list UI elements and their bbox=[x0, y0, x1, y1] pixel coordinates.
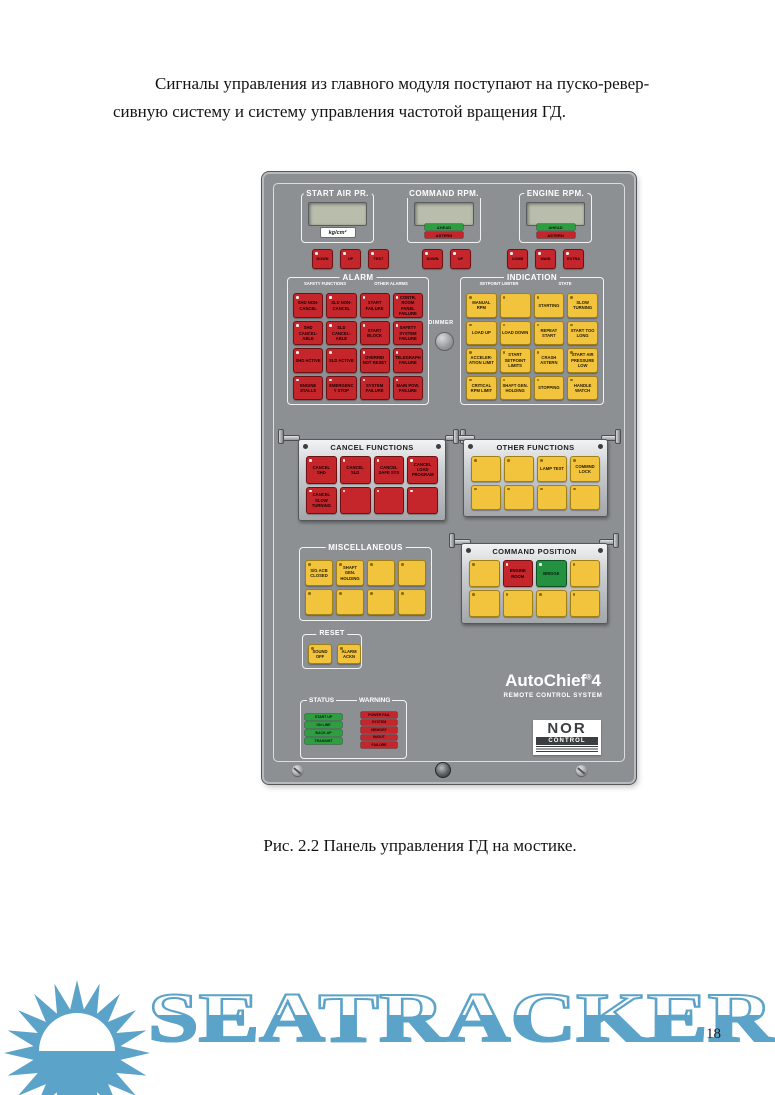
panel-button[interactable]: DOWN bbox=[312, 249, 333, 269]
command-position-button[interactable]: ENGINE ROOM bbox=[503, 560, 534, 587]
indication-button[interactable]: MANUAL RPM bbox=[466, 293, 497, 318]
button-label: S/G ACB CLOSED bbox=[306, 567, 332, 580]
button-led-dot bbox=[343, 252, 346, 255]
warning-title: WARNING bbox=[357, 697, 392, 704]
start-air-buttons: DOWNUPTEST bbox=[312, 249, 389, 269]
button-led-dot bbox=[339, 563, 342, 566]
start-air-pressure-group: START AIR PR. kg/cm² bbox=[301, 193, 374, 243]
other-functions-panel: OTHER FUNCTIONS LAMP TESTCOMMND LOCK bbox=[463, 439, 608, 517]
misc-button[interactable]: S/G ACB CLOSED bbox=[305, 560, 333, 586]
command-rpm-buttons: DOWNUP bbox=[422, 249, 471, 269]
alarm-button[interactable]: SHD CANCEL-ABLE bbox=[293, 321, 323, 345]
button-label: START BLOCK bbox=[361, 327, 389, 340]
button-led-dot bbox=[570, 351, 573, 354]
button-label bbox=[584, 573, 586, 575]
alarm-button[interactable]: OVERRID NOT RESET bbox=[360, 348, 390, 372]
button-led-dot bbox=[469, 296, 472, 299]
button-led-dot bbox=[573, 563, 576, 566]
norcontrol-wordmark-bottom: CONTROL bbox=[536, 737, 598, 745]
indication-button[interactable]: CRASH ASTERN bbox=[534, 348, 565, 373]
button-label: SAFETY SYSTEM FAILURE bbox=[394, 324, 422, 342]
alarm-button[interactable]: SLD CANCEL-ABLE bbox=[326, 321, 356, 345]
page-number: 18 bbox=[706, 1026, 721, 1043]
button-led-dot bbox=[308, 563, 311, 566]
button-led-dot bbox=[474, 459, 477, 462]
other-function-button[interactable] bbox=[537, 485, 567, 511]
misc-button[interactable] bbox=[305, 589, 333, 615]
button-label: SOUND OFF bbox=[309, 648, 331, 661]
other-button-grid: LAMP TESTCOMMND LOCK bbox=[471, 456, 600, 510]
misc-button[interactable]: SHAFT GEN. HOLDING bbox=[336, 560, 364, 586]
cancel-button[interactable]: CANCEL LOAD PROGRAM bbox=[407, 456, 438, 484]
engine-rpm-group: ENGINE RPM. AHEAD ASTERN bbox=[519, 193, 592, 243]
button-led-dot bbox=[377, 490, 380, 493]
button-led-dot bbox=[343, 459, 346, 462]
button-led-dot bbox=[296, 351, 299, 354]
button-label bbox=[411, 572, 413, 574]
button-led-dot bbox=[343, 490, 346, 493]
button-led-dot bbox=[469, 324, 472, 327]
button-label: SLD CANCEL-ABLE bbox=[327, 324, 355, 342]
button-led-dot bbox=[311, 647, 314, 650]
button-led-dot bbox=[329, 379, 332, 382]
status-led-bar: BACK-UP bbox=[305, 730, 342, 736]
alarm-button[interactable]: SLD ACTIVE bbox=[326, 348, 356, 372]
button-label bbox=[550, 603, 552, 605]
button-led-dot bbox=[410, 490, 413, 493]
button-led-dot bbox=[538, 252, 541, 255]
button-led-dot bbox=[425, 252, 428, 255]
astern-indicator: ASTERN bbox=[425, 232, 463, 238]
command-rpm-lcd bbox=[414, 202, 474, 226]
command-position-button[interactable]: BRIDGE bbox=[536, 560, 567, 587]
status-led-bar: ON LINE bbox=[305, 722, 342, 728]
panel-button[interactable]: UP bbox=[340, 249, 361, 269]
button-led-dot bbox=[570, 379, 573, 382]
button-led-dot bbox=[573, 459, 576, 462]
led-bar-label: SYSTEM bbox=[372, 720, 386, 724]
mounting-screw bbox=[576, 765, 587, 776]
indication-button[interactable]: START SETPOINT LIMITS bbox=[500, 348, 531, 373]
button-led-dot bbox=[371, 252, 374, 255]
button-label: SLD NON-CANCEL bbox=[327, 299, 355, 312]
button-label bbox=[354, 499, 356, 501]
button-label bbox=[518, 496, 520, 498]
led-bar-label: POWER FAIL bbox=[368, 713, 390, 717]
alarm-section: ALARM SAFETY FUNCTIONS OTHER ALARMS SHD … bbox=[287, 277, 429, 405]
button-label: SHD ACTIVE bbox=[295, 357, 322, 364]
button-led-dot bbox=[570, 324, 573, 327]
button-led-dot bbox=[339, 592, 342, 595]
button-label: CANCEL SAFE SYS bbox=[375, 464, 404, 477]
other-function-button[interactable] bbox=[570, 485, 600, 511]
button-led-dot bbox=[503, 351, 506, 354]
ahead-indicator: AHEAD bbox=[537, 224, 575, 230]
cancel-button[interactable] bbox=[340, 487, 371, 515]
led-bar-label: BACK-UP bbox=[315, 731, 331, 735]
command-position-button[interactable] bbox=[570, 560, 601, 587]
command-position-panel: COMMAND POSITION ENGINE ROOMBRIDGE bbox=[461, 543, 608, 624]
section-title: MISCELLANEOUS bbox=[325, 543, 406, 552]
cancel-button[interactable] bbox=[374, 487, 405, 515]
autochief-subtitle: REMOTE CONTROL SYSTEM bbox=[492, 692, 614, 699]
button-led-dot bbox=[363, 351, 366, 354]
other-function-button[interactable] bbox=[504, 485, 534, 511]
indication-button[interactable]: HANDLE WATCH bbox=[567, 376, 598, 401]
alarm-button[interactable]: ENGINE STALLS bbox=[293, 376, 323, 400]
led-bar-label: FAILURE bbox=[372, 743, 387, 747]
astern-indicator: ASTERN bbox=[537, 232, 575, 238]
other-function-button[interactable] bbox=[504, 456, 534, 482]
button-label: ENGINE ROOM bbox=[504, 567, 533, 580]
misc-button[interactable] bbox=[367, 589, 395, 615]
reset-button-row: SOUND OFFALARM ACKN bbox=[308, 644, 361, 664]
button-led-dot bbox=[503, 296, 506, 299]
other-function-button[interactable] bbox=[471, 456, 501, 482]
indication-button[interactable]: ACCELER- ATION LIMIT bbox=[466, 348, 497, 373]
hinge-screw bbox=[613, 533, 619, 548]
cancel-button[interactable]: CANCEL SLOW TURNING bbox=[306, 487, 337, 515]
button-label: START TOO LONG bbox=[568, 327, 597, 340]
alarm-button[interactable]: CONTR. ROOM PANEL FAILURE bbox=[393, 293, 423, 318]
button-label bbox=[380, 601, 382, 603]
panel-button[interactable]: EXTRA bbox=[563, 249, 584, 269]
button-led-dot bbox=[472, 563, 475, 566]
warning-led-bar: MEMORY bbox=[361, 727, 397, 733]
group-title: ENGINE RPM. bbox=[524, 189, 587, 198]
warning-led-column: POWER FAILSYSTEMMEMORYIN/OUTFAILURE bbox=[361, 712, 397, 748]
indication-button[interactable]: START AIR PRESSURE LOW bbox=[567, 348, 598, 373]
button-label: EMERGENCY STOP bbox=[327, 382, 355, 395]
norcontrol-logo: NOR CONTROL bbox=[533, 720, 601, 755]
button-label: COMB bbox=[511, 256, 525, 263]
misc-button-grid: S/G ACB CLOSEDSHAFT GEN. HOLDING bbox=[305, 560, 426, 615]
button-label bbox=[388, 499, 390, 501]
button-led-dot bbox=[363, 324, 366, 327]
button-led-dot bbox=[537, 351, 540, 354]
alarm-button[interactable]: SYSTEM FAILURE bbox=[360, 376, 390, 400]
button-led-dot bbox=[329, 296, 332, 299]
mounting-screw bbox=[292, 765, 303, 776]
button-label: LOAD UP bbox=[471, 329, 492, 336]
seatracker-watermark: SEATRACKER.RU bbox=[0, 960, 775, 1095]
button-led-dot bbox=[296, 379, 299, 382]
command-position-button[interactable] bbox=[570, 590, 601, 617]
button-label bbox=[551, 496, 553, 498]
button-label: TEST bbox=[373, 256, 385, 263]
sun-logo-icon bbox=[2, 978, 152, 1095]
button-label bbox=[411, 601, 413, 603]
button-label: SHAFT GEN. HOLDING bbox=[501, 382, 530, 395]
engine-rpm-buttons: COMBMAINEXTRA bbox=[507, 249, 584, 269]
button-led-dot bbox=[410, 459, 413, 462]
button-led-dot bbox=[510, 252, 513, 255]
indication-button-grid: MANUAL RPMSTARTINGSLOW TURNINGLOAD UPLOA… bbox=[466, 293, 598, 400]
button-led-dot bbox=[506, 593, 509, 596]
group-title: START AIR PR. bbox=[303, 189, 372, 198]
button-label: CRITICAL RPM LIMIT bbox=[467, 382, 496, 395]
button-label bbox=[349, 601, 351, 603]
autochief-wordmark: AutoChief®4 bbox=[505, 671, 601, 690]
button-label: SLOW TURNING bbox=[568, 299, 597, 312]
button-led-dot bbox=[340, 647, 343, 650]
section-title: RESET bbox=[316, 630, 347, 637]
panel-button[interactable]: COMB bbox=[507, 249, 528, 269]
indication-section: INDICATION SETPOINT LIMITER STATE MANUAL… bbox=[460, 277, 604, 405]
watermark-text: SEATRACKER.RU bbox=[148, 984, 775, 1054]
group-title: COMMAND RPM. bbox=[406, 189, 482, 198]
hinge-screw bbox=[453, 429, 459, 444]
indication-button[interactable]: LOAD DOWN bbox=[500, 321, 531, 346]
button-label bbox=[584, 496, 586, 498]
button-led-dot bbox=[370, 592, 373, 595]
reset-button[interactable]: ALARM ACKN bbox=[337, 644, 361, 664]
alarm-button[interactable]: TELEGRAPH FAILURE bbox=[393, 348, 423, 372]
button-label: START SETPOINT LIMITS bbox=[501, 351, 530, 369]
hinge-screw bbox=[615, 429, 621, 444]
button-label: UP bbox=[347, 256, 354, 263]
subsection-label: OTHER ALARMS bbox=[360, 281, 422, 286]
alarm-button[interactable]: START BLOCK bbox=[360, 321, 390, 345]
alarm-button[interactable]: MAIN POW. FAILURE bbox=[393, 376, 423, 400]
indication-button[interactable]: CRITICAL RPM LIMIT bbox=[466, 376, 497, 401]
panel-button[interactable]: DOWN bbox=[422, 249, 443, 269]
bottom-knob bbox=[435, 762, 451, 778]
command-position-button[interactable] bbox=[503, 590, 534, 617]
button-label: OVERRID NOT RESET bbox=[361, 354, 389, 367]
warning-led-bar: POWER FAIL bbox=[361, 712, 397, 718]
button-led-dot bbox=[506, 563, 509, 566]
button-led-dot bbox=[507, 488, 510, 491]
button-label bbox=[517, 603, 519, 605]
command-position-button[interactable] bbox=[469, 590, 500, 617]
warning-led-bar: FAILURE bbox=[361, 742, 397, 748]
button-label: SYSTEM FAILURE bbox=[361, 382, 389, 395]
button-led-dot bbox=[540, 459, 543, 462]
alarm-button[interactable]: EMERGENCY STOP bbox=[326, 376, 356, 400]
button-label bbox=[422, 499, 424, 501]
pressure-unit-label: kg/cm² bbox=[320, 227, 356, 238]
button-label: DOWN bbox=[425, 256, 439, 263]
button-led-dot bbox=[503, 324, 506, 327]
button-led-dot bbox=[570, 296, 573, 299]
alarm-button[interactable]: START FAILURE bbox=[360, 293, 390, 318]
button-led-dot bbox=[537, 379, 540, 382]
miscellaneous-section: MISCELLANEOUS S/G ACB CLOSEDSHAFT GEN. H… bbox=[299, 547, 432, 621]
subsection-label: SAFETY FUNCTIONS bbox=[294, 281, 356, 286]
button-led-dot bbox=[566, 252, 569, 255]
button-led-dot bbox=[363, 296, 366, 299]
button-label: MAIN POW. FAILURE bbox=[394, 382, 422, 395]
button-led-dot bbox=[309, 459, 312, 462]
button-label bbox=[485, 468, 487, 470]
button-led-dot bbox=[401, 592, 404, 595]
indication-button[interactable]: SHAFT GEN. HOLDING bbox=[500, 376, 531, 401]
led-bar-label: ON LINE bbox=[316, 723, 330, 727]
button-led-dot bbox=[370, 563, 373, 566]
button-label bbox=[518, 468, 520, 470]
cancel-button[interactable]: CANCEL SHD bbox=[306, 456, 337, 484]
button-label: UP bbox=[457, 256, 464, 263]
led-bar-label: MEMORY bbox=[371, 728, 387, 732]
status-led-bar: START UP bbox=[305, 714, 342, 720]
status-led-bar: TRANSMIT bbox=[305, 738, 342, 744]
alarm-button[interactable]: SHD NON-CANCEL bbox=[293, 293, 323, 318]
button-led-dot bbox=[377, 459, 380, 462]
button-led-dot bbox=[396, 351, 399, 354]
reset-button[interactable]: SOUND OFF bbox=[308, 644, 332, 664]
button-led-dot bbox=[469, 379, 472, 382]
body-paragraph: Сигналы управления из главного модуля по… bbox=[113, 70, 673, 125]
status-title: STATUS bbox=[307, 697, 336, 704]
button-label: ENGINE STALLS bbox=[294, 382, 322, 395]
command-rpm-group: COMMAND RPM. AHEAD ASTERN bbox=[407, 193, 481, 243]
button-label: BRIDGE bbox=[542, 570, 560, 577]
figure-caption: Рис. 2.2 Панель управления ГД на мостике… bbox=[150, 836, 690, 856]
document-page: Сигналы управления из главного модуля по… bbox=[0, 0, 775, 1095]
led-bar-label: IN/OUT bbox=[373, 735, 385, 739]
indication-button[interactable]: REPEAT START bbox=[534, 321, 565, 346]
alarm-button[interactable]: SHD ACTIVE bbox=[293, 348, 323, 372]
button-led-dot bbox=[537, 296, 540, 299]
other-function-button[interactable]: LAMP TEST bbox=[537, 456, 567, 482]
indication-button[interactable]: START TOO LONG bbox=[567, 321, 598, 346]
button-label: CRASH ASTERN bbox=[535, 354, 564, 367]
button-led-dot bbox=[472, 593, 475, 596]
norcontrol-wordmark-top: NOR bbox=[536, 722, 598, 736]
autochief-logo: AutoChief®4 REMOTE CONTROL SYSTEM bbox=[492, 672, 614, 699]
alarm-button-grid: SHD NON-CANCELSLD NON-CANCELSTART FAILUR… bbox=[293, 293, 423, 400]
button-led-dot bbox=[329, 324, 332, 327]
led-bar-label: START UP bbox=[315, 715, 332, 719]
cancel-button[interactable]: CANCEL SAFE SYS bbox=[374, 456, 405, 484]
button-label: STOPPING bbox=[537, 384, 561, 391]
indication-button[interactable]: STARTING bbox=[534, 293, 565, 318]
misc-button[interactable] bbox=[398, 589, 426, 615]
dimmer-knob[interactable] bbox=[435, 332, 454, 351]
cancel-button-grid: CANCEL SHDCANCEL SLDCANCEL SAFE SYSCANCE… bbox=[306, 456, 438, 514]
button-label: ACCELER- ATION LIMIT bbox=[467, 354, 496, 367]
other-function-button[interactable]: COMMND LOCK bbox=[570, 456, 600, 482]
alarm-button[interactable]: SAFETY SYSTEM FAILURE bbox=[393, 321, 423, 345]
button-label: CANCEL LOAD PROGRAM bbox=[408, 461, 437, 479]
dimmer-label: DIMMER bbox=[421, 320, 461, 326]
status-led-column: START UPON LINEBACK-UPTRANSMIT bbox=[305, 714, 342, 744]
button-label: CANCEL SHD bbox=[307, 464, 336, 477]
button-label bbox=[318, 601, 320, 603]
panel-button[interactable]: TEST bbox=[368, 249, 389, 269]
button-label: LOAD DOWN bbox=[501, 329, 529, 336]
button-label bbox=[485, 496, 487, 498]
hinge-screw bbox=[449, 533, 455, 548]
button-label bbox=[483, 603, 485, 605]
warning-led-bar: SYSTEM bbox=[361, 720, 397, 726]
button-label: MANUAL RPM bbox=[467, 299, 496, 312]
button-led-dot bbox=[573, 488, 576, 491]
button-led-dot bbox=[469, 351, 472, 354]
subsection-label: SETPOINT LIMITER bbox=[467, 281, 531, 286]
led-bar-label: TRANSMIT bbox=[314, 739, 332, 743]
ahead-indicator: AHEAD bbox=[425, 224, 463, 230]
button-label bbox=[514, 304, 516, 306]
misc-button[interactable] bbox=[398, 560, 426, 586]
status-warning-section: STATUS WARNING START UPON LINEBACK-UPTRA… bbox=[300, 700, 407, 759]
indication-button[interactable]: STOPPING bbox=[534, 376, 565, 401]
cancel-functions-panel: CANCEL FUNCTIONS CANCEL SHDCANCEL SLDCAN… bbox=[298, 439, 446, 521]
button-label: CANCEL SLD bbox=[341, 464, 370, 477]
button-label: SHD CANCEL-ABLE bbox=[294, 324, 322, 342]
misc-button[interactable] bbox=[367, 560, 395, 586]
command-position-grid: ENGINE ROOMBRIDGE bbox=[469, 560, 600, 617]
button-led-dot bbox=[540, 488, 543, 491]
button-led-dot bbox=[396, 324, 399, 327]
button-led-dot bbox=[539, 593, 542, 596]
button-label: ALARM ACKN bbox=[338, 648, 360, 661]
button-label: START FAILURE bbox=[361, 299, 389, 312]
reset-section: RESET SOUND OFFALARM ACKN bbox=[302, 634, 362, 669]
button-led-dot bbox=[573, 593, 576, 596]
command-position-button[interactable] bbox=[536, 590, 567, 617]
button-label bbox=[483, 573, 485, 575]
section-title: CANCEL FUNCTIONS bbox=[299, 443, 445, 452]
button-label: MAIN bbox=[540, 256, 552, 263]
norcontrol-stripes bbox=[536, 746, 598, 753]
button-led-dot bbox=[453, 252, 456, 255]
button-led-dot bbox=[315, 252, 318, 255]
button-led-dot bbox=[396, 296, 399, 299]
command-position-button[interactable] bbox=[469, 560, 500, 587]
button-led-dot bbox=[474, 488, 477, 491]
button-label: SHD NON-CANCEL bbox=[294, 299, 322, 312]
indication-button[interactable]: LOAD UP bbox=[466, 321, 497, 346]
cancel-button[interactable] bbox=[407, 487, 438, 515]
button-label: COMMND LOCK bbox=[571, 463, 599, 476]
button-label: REPEAT START bbox=[535, 327, 564, 340]
button-label: DOWN bbox=[315, 256, 329, 263]
button-label: STARTING bbox=[537, 302, 560, 309]
indication-button[interactable] bbox=[500, 293, 531, 318]
other-function-button[interactable] bbox=[471, 485, 501, 511]
misc-button[interactable] bbox=[336, 589, 364, 615]
button-label bbox=[584, 603, 586, 605]
alarm-button[interactable]: SLD NON-CANCEL bbox=[326, 293, 356, 318]
section-title: OTHER FUNCTIONS bbox=[464, 443, 607, 452]
button-label: SLD ACTIVE bbox=[328, 357, 355, 364]
indication-button[interactable]: SLOW TURNING bbox=[567, 293, 598, 318]
button-label bbox=[380, 572, 382, 574]
button-label: START AIR PRESSURE LOW bbox=[568, 351, 597, 369]
button-led-dot bbox=[401, 563, 404, 566]
button-label: HANDLE WATCH bbox=[568, 382, 597, 395]
button-led-dot bbox=[309, 490, 312, 493]
panel-button[interactable]: MAIN bbox=[535, 249, 556, 269]
button-led-dot bbox=[296, 296, 299, 299]
button-label: LAMP TEST bbox=[539, 465, 565, 472]
button-label: CANCEL SLOW TURNING bbox=[307, 491, 336, 509]
button-label: SHAFT GEN. HOLDING bbox=[337, 564, 363, 582]
subsection-label: STATE bbox=[533, 281, 597, 286]
button-led-dot bbox=[539, 563, 542, 566]
autochief-bridge-panel: START AIR PR. kg/cm² COMMAND RPM. AHEAD … bbox=[262, 172, 636, 784]
cancel-button[interactable]: CANCEL SLD bbox=[340, 456, 371, 484]
paragraph-line: сивную систему и систему управления част… bbox=[113, 98, 673, 126]
paragraph-line: Сигналы управления из главного модуля по… bbox=[113, 70, 673, 98]
warning-led-bar: IN/OUT bbox=[361, 735, 397, 741]
button-led-dot bbox=[507, 459, 510, 462]
button-label: TELEGRAPH FAILURE bbox=[394, 354, 422, 367]
panel-button[interactable]: UP bbox=[450, 249, 471, 269]
button-led-dot bbox=[329, 351, 332, 354]
